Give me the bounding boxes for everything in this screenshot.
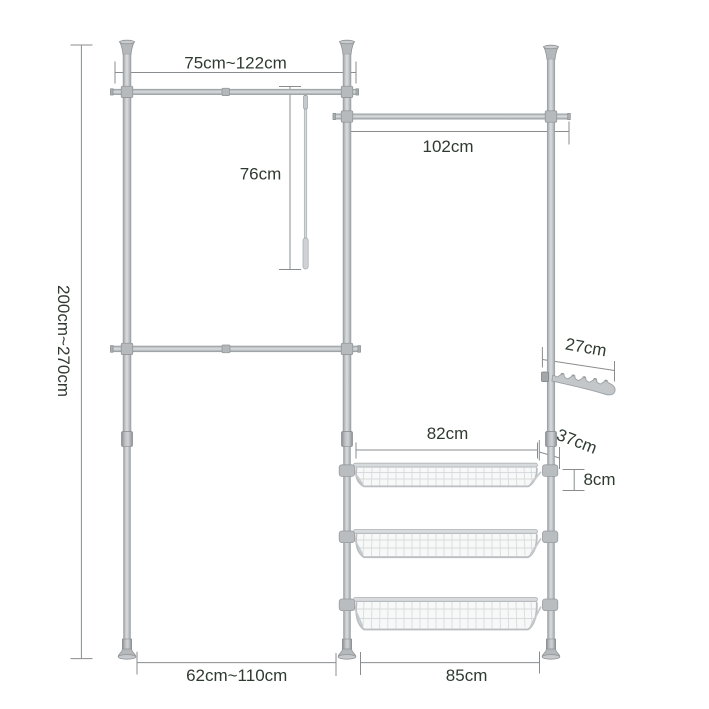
svg-text:27cm: 27cm bbox=[564, 335, 608, 361]
svg-text:200cm~270cm: 200cm~270cm bbox=[54, 285, 73, 397]
svg-text:102cm: 102cm bbox=[422, 137, 473, 156]
svg-text:62cm~110cm: 62cm~110cm bbox=[186, 666, 287, 685]
svg-text:85cm: 85cm bbox=[446, 666, 488, 685]
svg-text:82cm: 82cm bbox=[427, 424, 469, 443]
svg-text:75cm~122cm: 75cm~122cm bbox=[184, 54, 287, 73]
svg-text:76cm: 76cm bbox=[240, 165, 282, 184]
svg-text:8cm: 8cm bbox=[583, 470, 615, 489]
svg-text:37cm: 37cm bbox=[554, 425, 600, 458]
